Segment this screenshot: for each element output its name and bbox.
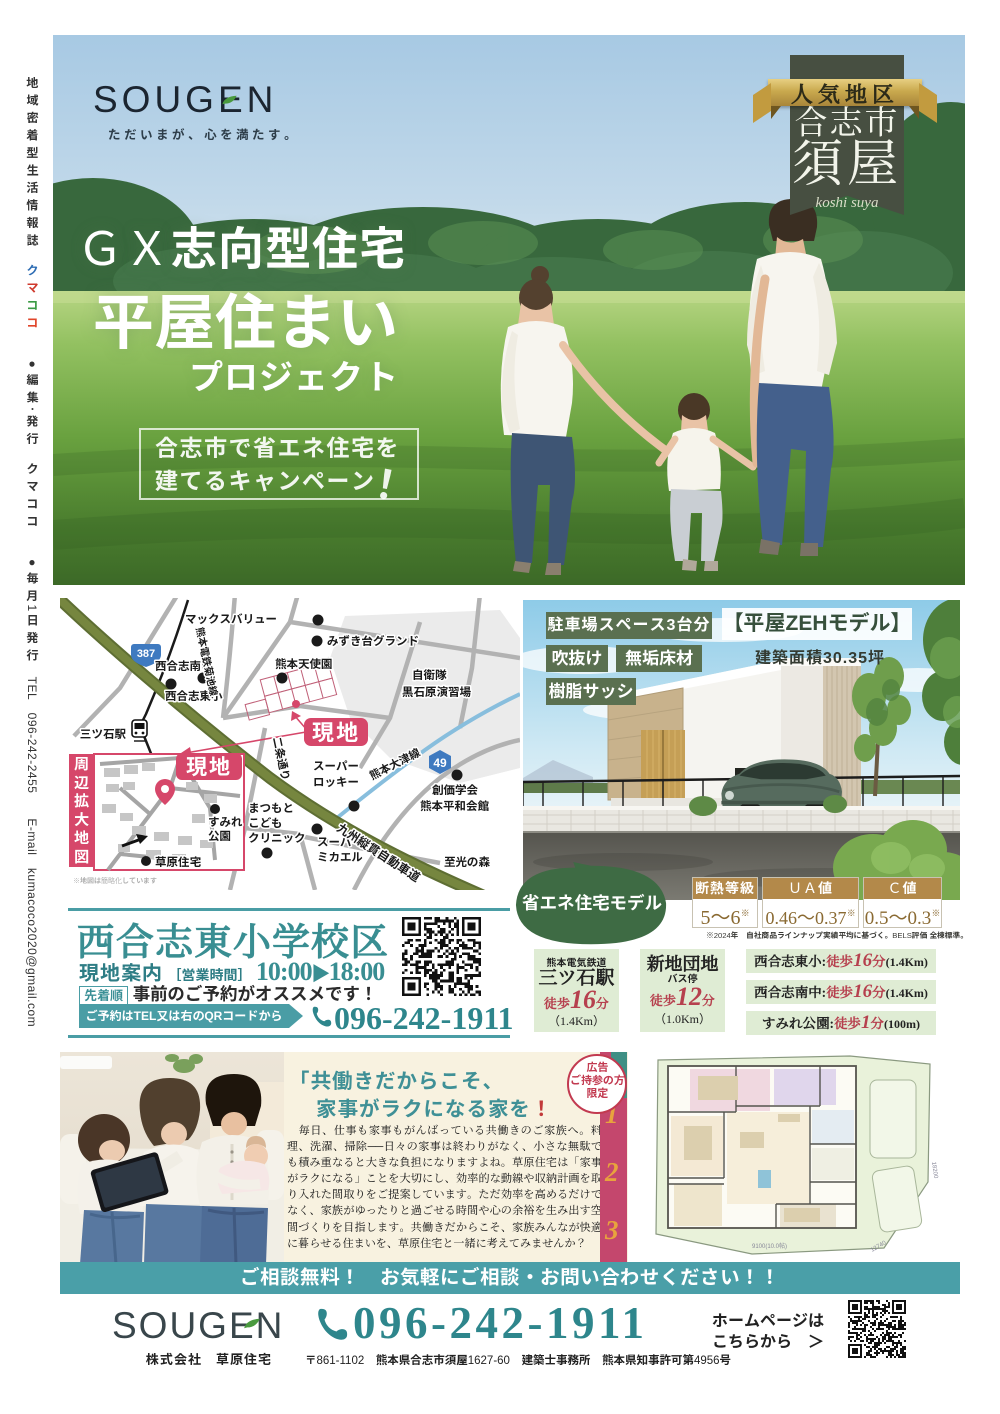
svg-text:みずき台グランド: みずき台グランド (327, 635, 419, 648)
svg-text:9100(10.0帖): 9100(10.0帖) (752, 1242, 787, 1250)
svg-text:ロッキー: ロッキー (313, 776, 359, 789)
svg-text:至光の森: 至光の森 (444, 856, 490, 869)
svg-text:まつもと: まつもと (248, 802, 294, 815)
svg-text:創価学会: 創価学会 (432, 784, 478, 797)
svg-text:※地図は簡略化しています: ※地図は簡略化しています (73, 876, 157, 885)
svg-text:草原住宅: 草原住宅 (155, 856, 201, 869)
svg-text:熊本平和会館: 熊本平和会館 (420, 799, 489, 813)
svg-text:黒石原演習場: 黒石原演習場 (402, 686, 471, 699)
svg-text:387: 387 (137, 648, 155, 660)
svg-text:クリニック: クリニック (248, 832, 306, 845)
svg-text:49: 49 (433, 756, 447, 770)
svg-text:スーパー: スーパー (313, 760, 359, 773)
svg-text:すみれ: すみれ (208, 816, 243, 829)
svg-text:現地: 現地 (186, 756, 232, 779)
svg-text:自衛隊: 自衛隊 (412, 668, 447, 682)
svg-text:マックスバリュー: マックスバリュー (185, 613, 277, 626)
svg-text:現地: 現地 (312, 720, 360, 745)
svg-text:熊本天使園: 熊本天使園 (275, 657, 333, 671)
svg-text:18200: 18200 (930, 1161, 938, 1179)
svg-text:ミカエル: ミカエル (317, 852, 363, 864)
svg-text:三ツ石駅: 三ツ石駅 (80, 729, 126, 741)
svg-text:こども: こども (248, 817, 283, 830)
svg-text:公園: 公園 (208, 830, 231, 843)
